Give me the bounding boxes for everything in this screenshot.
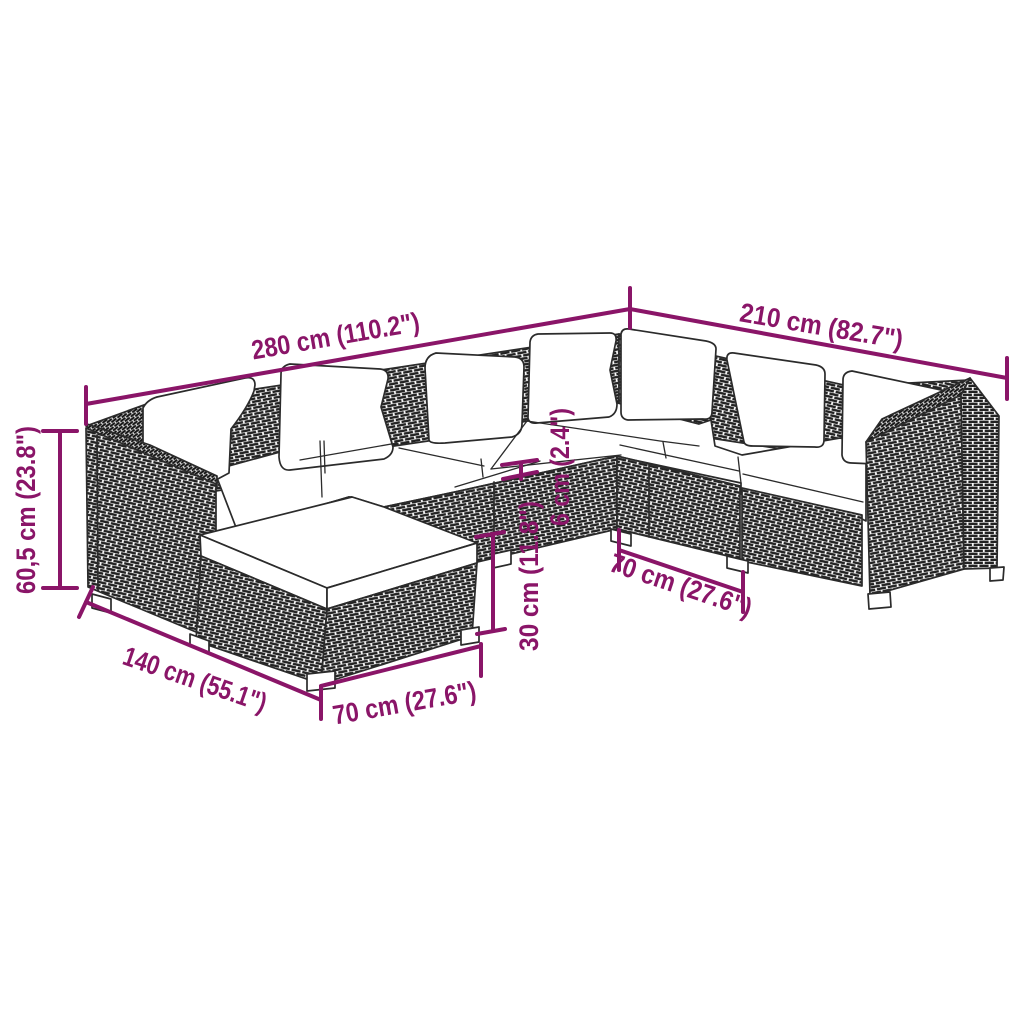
svg-text:60,5 cm (23.8"): 60,5 cm (23.8")	[11, 426, 41, 594]
svg-text:30 cm (11.8"): 30 cm (11.8")	[514, 501, 544, 651]
svg-text:6 cm (2.4"): 6 cm (2.4")	[545, 408, 575, 526]
